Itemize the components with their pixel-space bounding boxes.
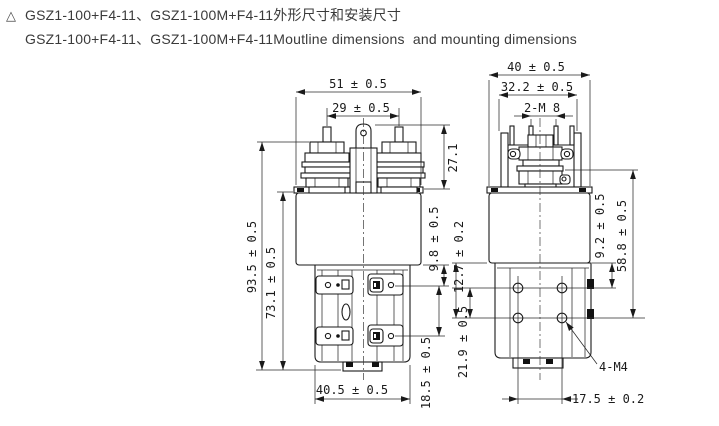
- front-body: [296, 193, 421, 265]
- side-clip-upper: [587, 279, 594, 289]
- dim-side-hole-row-spacing: 12.7 ± 0.2: [452, 221, 466, 293]
- title-block: △ GSZ1-100+F4-11、GSZ1-100M+F4-11外形尺寸和安装尺…: [6, 5, 577, 49]
- dim-front-body-height: 73.1 ± 0.5: [264, 247, 278, 319]
- dim-front-base-width: 40.5 ± 0.5: [316, 383, 388, 397]
- side-wall-right: [574, 133, 581, 187]
- side-wall-left: [501, 133, 508, 187]
- title-line-english: GSZ1-100+F4-11、GSZ1-100M+F4-11Moutline d…: [25, 29, 577, 49]
- dim-side-mounting-height: 58.8 ± 0.5: [615, 200, 629, 272]
- title-line-chinese: GSZ1-100+F4-11、GSZ1-100M+F4-11外形尺寸和安装尺寸: [25, 5, 401, 25]
- dim-side-mounting-holes: 4-M4: [599, 360, 628, 374]
- side-view: 40 ± 0.5 32.2 ± 0.5 2-M 8 9.2 ± 0.5: [452, 60, 645, 406]
- front-view: 51 ± 0.5 29 ± 0.5 27.1 93.5 ± 0.5: [245, 77, 460, 409]
- dim-front-terminal-height: 27.1: [446, 144, 460, 173]
- technical-drawing: 51 ± 0.5 29 ± 0.5 27.1 93.5 ± 0.5: [0, 0, 719, 426]
- datasheet-page: △ GSZ1-100+F4-11、GSZ1-100M+F4-11外形尺寸和安装尺…: [0, 0, 719, 426]
- dim-side-hole-row1-offset: 9.2 ± 0.5: [593, 193, 607, 258]
- front-terminal-right: [373, 127, 425, 193]
- side-body: [489, 193, 590, 263]
- side-clip-lower: [587, 309, 594, 319]
- side-base: [495, 263, 591, 358]
- triangle-marker-icon: △: [6, 8, 25, 24]
- dim-side-hole-column-spacing: 17.5 ± 0.2: [572, 392, 644, 406]
- dim-front-terminal-spacing: 29 ± 0.5: [332, 101, 390, 115]
- dim-front-overall-height: 93.5 ± 0.5: [245, 221, 259, 293]
- dim-side-main-terminals: 2-M 8: [524, 101, 560, 115]
- dim-side-overall-width: 40 ± 0.5: [507, 60, 565, 74]
- dim-front-body-width: 51 ± 0.5: [329, 77, 387, 91]
- side-terminal-stack: [508, 135, 573, 189]
- dim-side-housing-width: 32.2 ± 0.5: [501, 80, 573, 94]
- dim-front-tab-row1-offset: 9.8 ± 0.5: [427, 206, 441, 271]
- dim-front-tab-row-spacing: 18.5 ± 0.5: [419, 337, 433, 409]
- dim-side-hole-row2-offset: 21.9 ± 0.5: [456, 306, 470, 378]
- side-foot: [513, 358, 563, 368]
- side-top-plate: [487, 187, 592, 193]
- front-plate-mark-left: [297, 188, 304, 192]
- front-terminal-left: [301, 127, 353, 193]
